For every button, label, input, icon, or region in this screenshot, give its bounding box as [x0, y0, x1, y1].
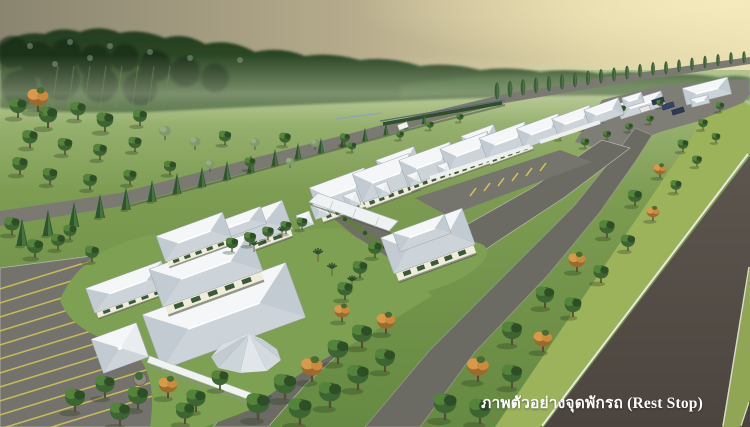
scene-canvas: [0, 0, 750, 427]
rest-stop-rendering: ภาพตัวอย่างจุดพักรถ (Rest Stop): [0, 0, 750, 427]
caption-text: ภาพตัวอย่างจุดพักรถ (Rest Stop): [481, 390, 703, 415]
